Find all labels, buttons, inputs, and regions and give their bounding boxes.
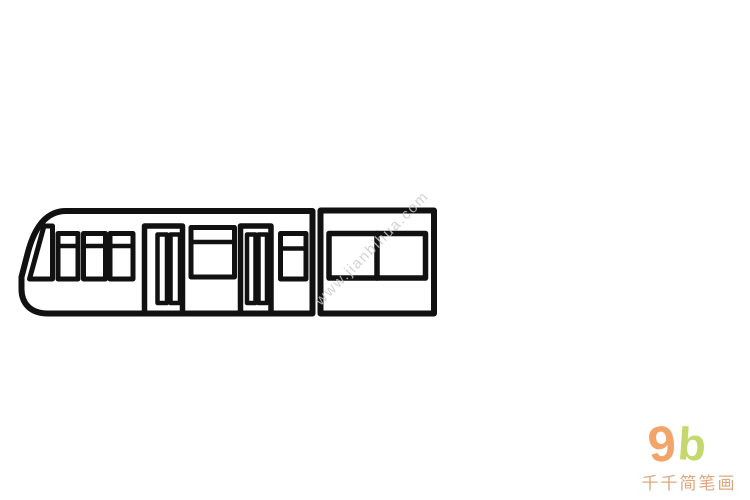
door-2-leaf-right	[259, 235, 268, 304]
drawing-canvas: www.jianbihua.com 9 b 千千简笔画	[0, 0, 750, 500]
door-2-leaf-left	[247, 235, 256, 304]
door-1-leaf-left	[158, 235, 168, 304]
logo-96-icon: 9 b	[634, 423, 744, 469]
door-1	[145, 226, 183, 314]
brand-logo: 9 b 千千简笔画	[634, 423, 744, 492]
window-3	[110, 234, 133, 280]
door-1-frame	[145, 226, 183, 314]
rear-window-front-car	[281, 234, 307, 280]
brand-name-text: 千千简笔画	[634, 475, 744, 492]
door-2	[241, 226, 272, 314]
logo-digit-b: b	[676, 420, 707, 468]
window-1	[58, 234, 78, 280]
front-windows	[58, 234, 133, 280]
window-2	[84, 234, 106, 280]
middle-window	[191, 228, 235, 278]
logo-digit-nine: 9	[645, 418, 678, 471]
door-1-leaf-right	[171, 235, 181, 304]
